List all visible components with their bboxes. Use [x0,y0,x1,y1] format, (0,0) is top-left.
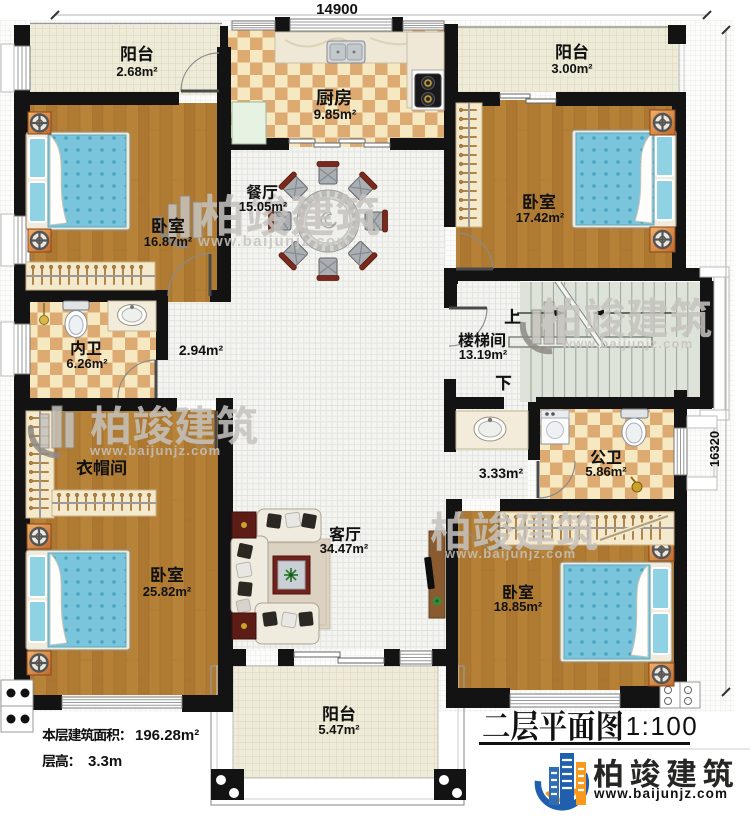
svg-text:www.baijunjz.com: www.baijunjz.com [561,336,693,351]
svg-text:5.86m²: 5.86m² [585,464,627,479]
svg-text:25.82m²: 25.82m² [143,584,192,599]
svg-text:15.05m²: 15.05m² [239,199,288,214]
svg-text:www.baijunjz.com: www.baijunjz.com [593,786,728,801]
svg-text:www.baijunjz.com: www.baijunjz.com [444,546,576,561]
svg-text:1:100: 1:100 [626,711,699,741]
svg-text:16.87m²: 16.87m² [144,234,193,249]
svg-text:5.47m²: 5.47m² [318,722,360,737]
svg-text:3.33m²: 3.33m² [479,465,524,481]
svg-text:6.26m²: 6.26m² [66,356,108,371]
svg-text:9.85m²: 9.85m² [314,107,357,122]
svg-text:www.baijunjz.com: www.baijunjz.com [89,443,221,458]
svg-text:3.00m²: 3.00m² [551,61,593,76]
svg-text:2.68m²: 2.68m² [116,64,158,79]
svg-text:34.47m²: 34.47m² [320,541,369,556]
svg-text:3.3m: 3.3m [88,753,122,770]
svg-text:16320: 16320 [707,431,722,467]
svg-text:14900: 14900 [316,1,358,18]
svg-text:196.28m²: 196.28m² [135,727,199,744]
svg-text:www.baijunjz.com: www.baijunjz.com [197,233,351,250]
svg-text:17.42m²: 17.42m² [516,210,565,225]
svg-text:13.19m²: 13.19m² [459,347,508,362]
svg-text:2.94m²: 2.94m² [179,342,224,358]
svg-text:18.85m²: 18.85m² [494,599,543,614]
